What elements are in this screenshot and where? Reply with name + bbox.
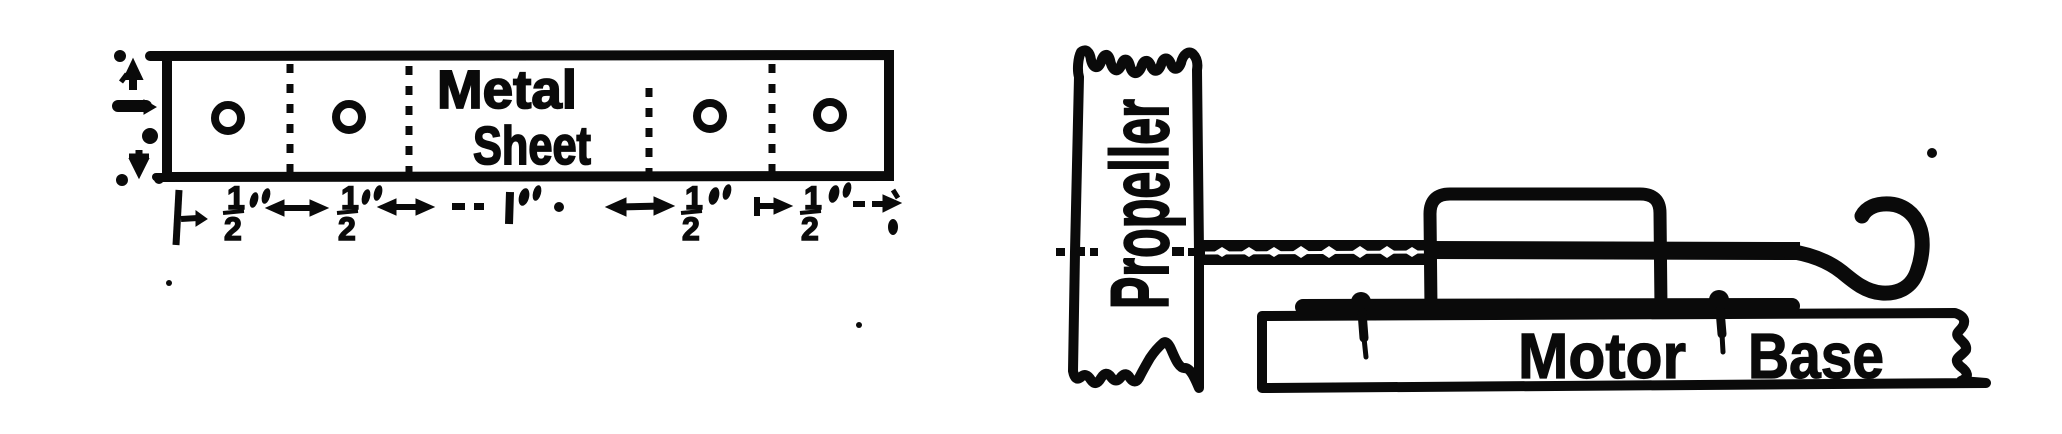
- svg-text:2: 2: [682, 211, 700, 247]
- svg-text:2: 2: [224, 211, 242, 247]
- svg-text:2: 2: [338, 211, 356, 247]
- svg-text:Base: Base: [1748, 320, 1884, 392]
- svg-text:2: 2: [801, 211, 819, 247]
- svg-text:Propeller: Propeller: [1095, 99, 1186, 309]
- svg-text:Metal: Metal: [437, 60, 577, 120]
- svg-text:Sheet: Sheet: [473, 116, 591, 176]
- svg-text:Motor: Motor: [1518, 320, 1686, 392]
